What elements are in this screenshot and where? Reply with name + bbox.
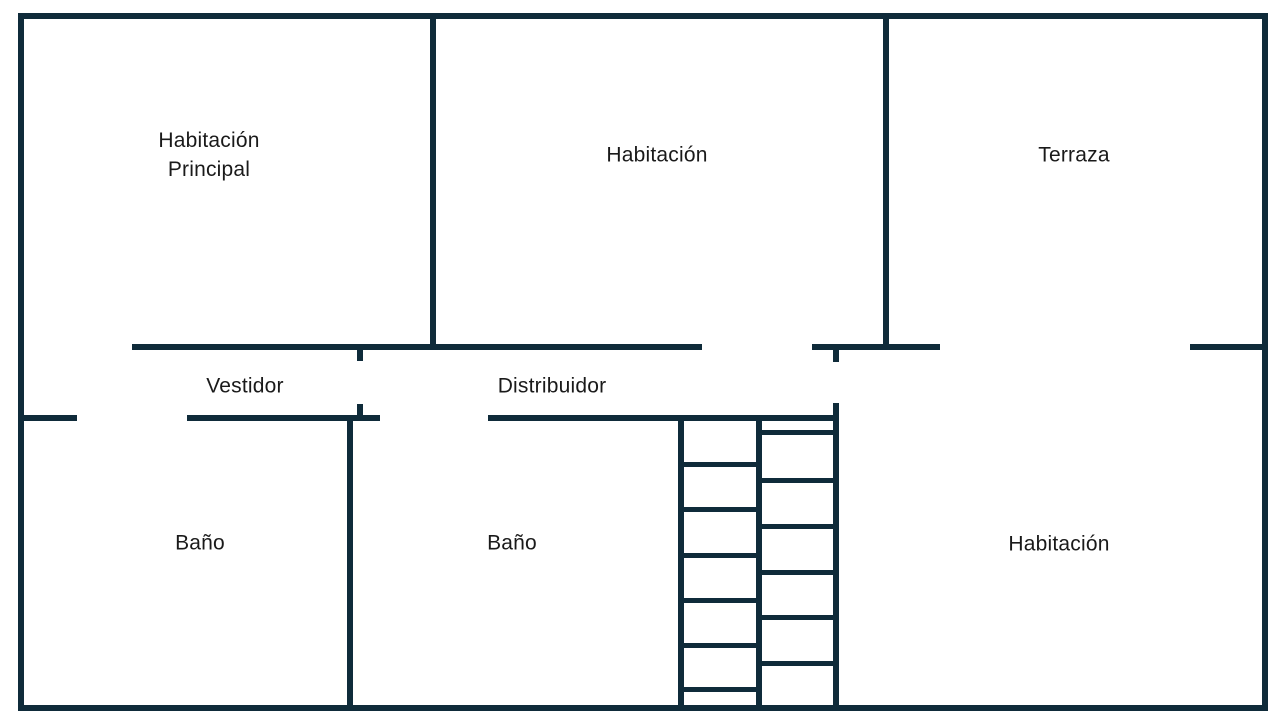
room-label-bano-centro: Baño: [487, 529, 537, 558]
labels-layer: HabitaciónPrincipalHabitaciónTerrazaVest…: [0, 0, 1280, 720]
room-label-terraza: Terraza: [1038, 141, 1109, 170]
room-label-distribuidor: Distribuidor: [498, 372, 607, 401]
room-label-line: Baño: [175, 529, 225, 558]
room-label-habitacion-principal: HabitaciónPrincipal: [158, 126, 259, 184]
room-label-bano-izquierdo: Baño: [175, 529, 225, 558]
room-label-line: Terraza: [1038, 141, 1109, 170]
room-label-vestidor: Vestidor: [206, 372, 283, 401]
room-label-line: Habitación: [606, 141, 707, 170]
room-label-habitacion-inferior: Habitación: [1008, 530, 1109, 559]
room-label-habitacion-superior: Habitación: [606, 141, 707, 170]
room-label-line: Distribuidor: [498, 372, 607, 401]
room-label-line: Baño: [487, 529, 537, 558]
floor-plan: HabitaciónPrincipalHabitaciónTerrazaVest…: [0, 0, 1280, 720]
room-label-line: Vestidor: [206, 372, 283, 401]
room-label-line: Principal: [158, 155, 259, 184]
room-label-line: Habitación: [158, 126, 259, 155]
room-label-line: Habitación: [1008, 530, 1109, 559]
